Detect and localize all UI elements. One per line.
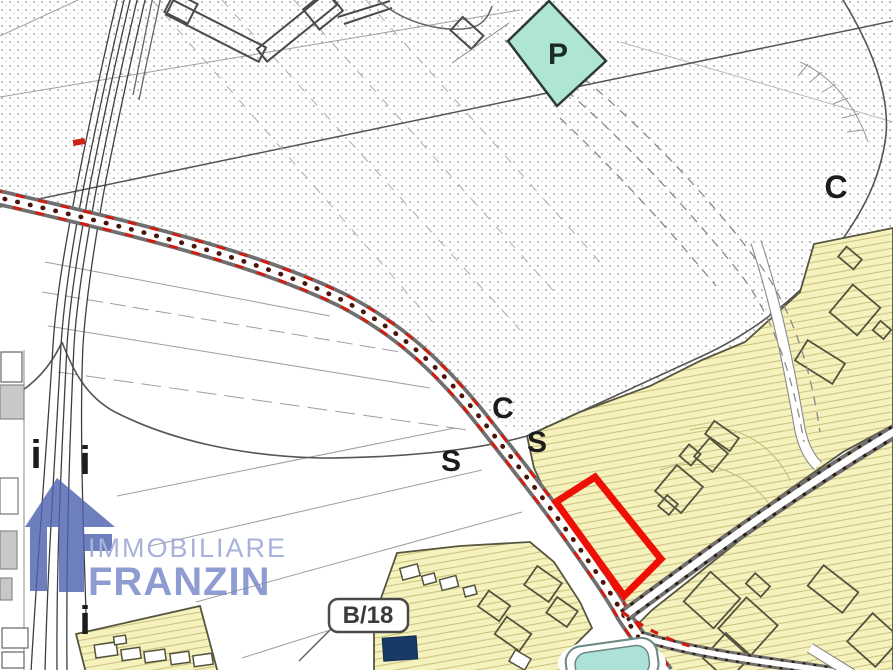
navy-building xyxy=(382,636,418,661)
zoning-map-page: B/18 C C S S i i i P IMMOBILIARE FRANZIN xyxy=(0,0,893,670)
marker-i-1: i xyxy=(30,433,41,477)
parking-letter: P xyxy=(548,38,568,71)
zone-label-s-right: S xyxy=(527,426,547,459)
zone-label-s-left: S xyxy=(441,445,461,478)
watermark-line1: IMMOBILIARE xyxy=(88,533,287,563)
map-canvas[interactable]: B/18 C C S S i i i P IMMOBILIARE FRANZIN xyxy=(0,0,893,670)
logo-f-stem xyxy=(59,527,84,592)
marker-i-3: i xyxy=(79,599,90,643)
logo-wall xyxy=(30,527,47,591)
zone-label-c-upper: C xyxy=(824,169,847,205)
watermark-line2: FRANZIN xyxy=(88,560,271,604)
zone-label-c-lower: C xyxy=(492,392,514,425)
b18-label-text: B/18 xyxy=(343,602,394,629)
marker-i-2: i xyxy=(79,439,90,483)
